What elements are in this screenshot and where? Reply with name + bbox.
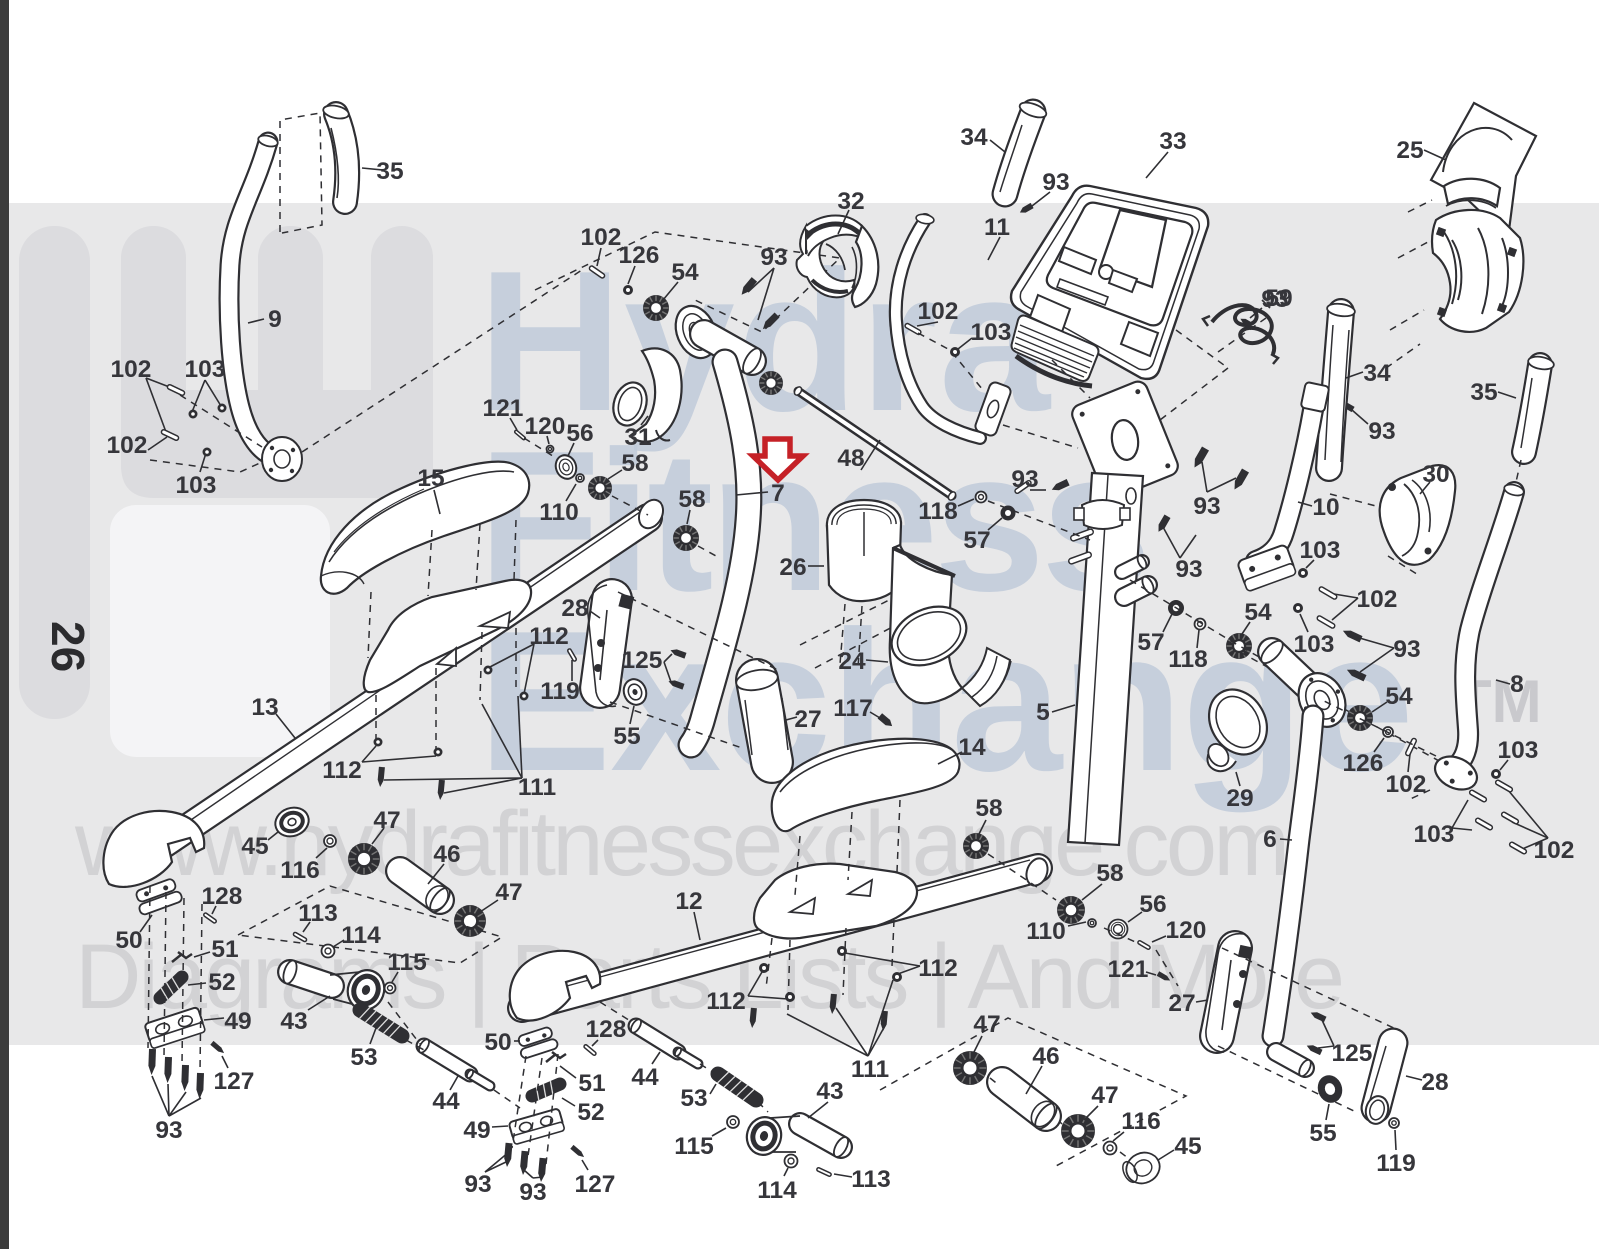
svg-text:93: 93 — [1042, 169, 1069, 196]
svg-text:102: 102 — [1357, 586, 1398, 613]
svg-text:119: 119 — [1376, 1150, 1416, 1177]
svg-text:112: 112 — [918, 955, 958, 982]
svg-text:45: 45 — [241, 833, 268, 860]
svg-text:112: 112 — [706, 988, 746, 1015]
svg-text:58: 58 — [975, 795, 1002, 822]
svg-text:8: 8 — [1510, 671, 1524, 698]
svg-text:43: 43 — [816, 1078, 843, 1105]
svg-text:26: 26 — [779, 554, 806, 581]
svg-text:44: 44 — [631, 1064, 659, 1091]
svg-text:128: 128 — [202, 883, 243, 910]
svg-text:53: 53 — [350, 1044, 377, 1071]
svg-text:115: 115 — [674, 1133, 714, 1160]
svg-text:28: 28 — [561, 595, 588, 622]
svg-text:125: 125 — [1332, 1040, 1373, 1067]
svg-text:121: 121 — [1108, 956, 1149, 983]
svg-text:58: 58 — [678, 486, 705, 513]
svg-text:102: 102 — [107, 432, 148, 459]
svg-text:26: 26 — [42, 621, 94, 672]
svg-text:47: 47 — [373, 807, 400, 834]
svg-text:103: 103 — [1294, 631, 1335, 658]
svg-text:93: 93 — [519, 1179, 546, 1206]
svg-text:103: 103 — [1414, 821, 1455, 848]
svg-text:27: 27 — [794, 706, 821, 733]
svg-text:53: 53 — [680, 1085, 707, 1112]
svg-text:32: 32 — [837, 188, 864, 215]
svg-text:6: 6 — [1263, 826, 1277, 853]
svg-text:50: 50 — [484, 1029, 511, 1056]
svg-text:112: 112 — [529, 623, 569, 650]
svg-text:120: 120 — [1166, 917, 1207, 944]
svg-text:115: 115 — [387, 949, 427, 976]
svg-text:46: 46 — [433, 841, 460, 868]
svg-text:35: 35 — [376, 158, 403, 185]
svg-text:113: 113 — [298, 900, 338, 927]
svg-text:126: 126 — [619, 242, 660, 269]
svg-text:14: 14 — [958, 734, 986, 761]
svg-text:110: 110 — [1026, 918, 1066, 945]
svg-text:49: 49 — [463, 1117, 490, 1144]
svg-text:118: 118 — [918, 498, 958, 525]
svg-text:35: 35 — [1470, 379, 1497, 406]
svg-text:54: 54 — [1244, 599, 1272, 626]
svg-text:29: 29 — [1226, 785, 1253, 812]
svg-text:103: 103 — [1300, 537, 1341, 564]
svg-text:11: 11 — [984, 214, 1010, 241]
svg-text:125: 125 — [622, 647, 663, 674]
svg-text:25: 25 — [1396, 137, 1423, 164]
svg-text:116: 116 — [280, 857, 320, 884]
svg-text:103: 103 — [176, 472, 217, 499]
svg-text:93: 93 — [1175, 556, 1202, 583]
svg-text:93: 93 — [1011, 466, 1038, 493]
svg-text:33: 33 — [1159, 128, 1186, 155]
svg-text:110: 110 — [539, 499, 579, 526]
svg-text:103: 103 — [1498, 737, 1539, 764]
svg-text:118: 118 — [1168, 646, 1208, 673]
svg-text:30: 30 — [1422, 461, 1449, 488]
svg-text:93: 93 — [1193, 493, 1220, 520]
svg-text:102: 102 — [1386, 771, 1427, 798]
svg-text:54: 54 — [1385, 683, 1413, 710]
svg-text:15: 15 — [417, 465, 444, 492]
svg-text:114: 114 — [757, 1177, 797, 1204]
svg-text:58: 58 — [1096, 860, 1123, 887]
svg-text:5: 5 — [1036, 699, 1050, 726]
svg-text:48: 48 — [837, 445, 864, 472]
svg-text:55: 55 — [1309, 1120, 1336, 1147]
svg-text:34: 34 — [1363, 360, 1391, 387]
svg-text:113: 113 — [851, 1166, 891, 1193]
svg-text:7: 7 — [771, 480, 785, 507]
svg-text:117: 117 — [833, 695, 873, 722]
svg-text:93: 93 — [760, 244, 787, 271]
svg-text:47: 47 — [1091, 1082, 1118, 1109]
svg-text:102: 102 — [111, 356, 152, 383]
svg-text:102: 102 — [918, 298, 959, 325]
svg-text:51: 51 — [211, 936, 238, 963]
svg-text:47: 47 — [495, 879, 522, 906]
svg-text:56: 56 — [1139, 891, 1166, 918]
svg-text:44: 44 — [432, 1088, 460, 1115]
svg-text:9: 9 — [268, 306, 282, 333]
svg-text:126: 126 — [1343, 750, 1384, 777]
svg-text:121: 121 — [483, 395, 524, 422]
svg-text:93: 93 — [1261, 286, 1288, 313]
svg-text:45: 45 — [1174, 1133, 1201, 1160]
svg-text:102: 102 — [581, 224, 622, 251]
svg-text:10: 10 — [1312, 494, 1339, 521]
svg-text:49: 49 — [224, 1008, 251, 1035]
svg-text:56: 56 — [566, 420, 593, 447]
svg-text:34: 34 — [960, 124, 988, 151]
svg-text:93: 93 — [155, 1117, 182, 1144]
svg-text:24: 24 — [838, 648, 866, 675]
svg-text:57: 57 — [963, 527, 990, 554]
svg-text:111: 111 — [518, 774, 556, 801]
svg-text:103: 103 — [185, 356, 226, 383]
svg-text:46: 46 — [1032, 1043, 1059, 1070]
svg-text:58: 58 — [621, 450, 648, 477]
svg-text:93: 93 — [1393, 636, 1420, 663]
svg-text:50: 50 — [115, 927, 142, 954]
svg-text:54: 54 — [671, 259, 699, 286]
svg-text:31: 31 — [624, 424, 651, 451]
svg-text:93: 93 — [1368, 418, 1395, 445]
svg-text:128: 128 — [586, 1016, 627, 1043]
svg-text:13: 13 — [251, 694, 278, 721]
svg-text:55: 55 — [613, 723, 640, 750]
svg-text:127: 127 — [214, 1068, 255, 1095]
svg-text:51: 51 — [578, 1070, 605, 1097]
svg-text:120: 120 — [525, 413, 566, 440]
svg-text:114: 114 — [341, 922, 381, 949]
svg-text:27: 27 — [1168, 990, 1195, 1017]
svg-text:57: 57 — [1137, 629, 1164, 656]
svg-text:111: 111 — [851, 1056, 889, 1083]
svg-text:127: 127 — [575, 1171, 616, 1198]
svg-text:28: 28 — [1421, 1069, 1448, 1096]
svg-text:103: 103 — [971, 319, 1012, 346]
svg-text:43: 43 — [280, 1008, 307, 1035]
svg-text:119: 119 — [540, 678, 580, 705]
svg-text:12: 12 — [675, 888, 702, 915]
svg-text:116: 116 — [1121, 1108, 1161, 1135]
svg-text:52: 52 — [577, 1099, 604, 1126]
svg-text:112: 112 — [322, 757, 362, 784]
svg-text:93: 93 — [464, 1171, 491, 1198]
svg-text:52: 52 — [208, 969, 235, 996]
